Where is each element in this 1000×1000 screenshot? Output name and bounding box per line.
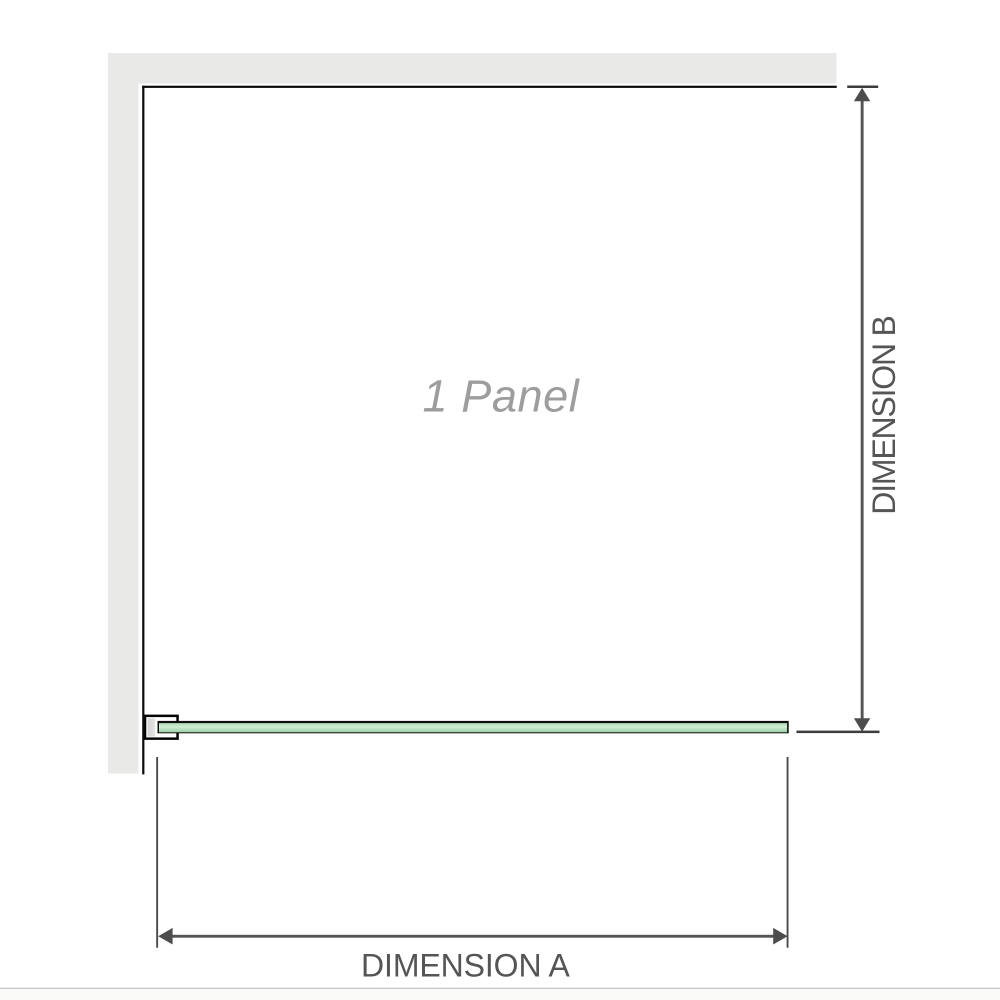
- svg-text:DIMENSION B: DIMENSION B: [866, 316, 902, 514]
- svg-text:1 Panel: 1 Panel: [422, 370, 580, 421]
- svg-text:DIMENSION A: DIMENSION A: [361, 948, 570, 984]
